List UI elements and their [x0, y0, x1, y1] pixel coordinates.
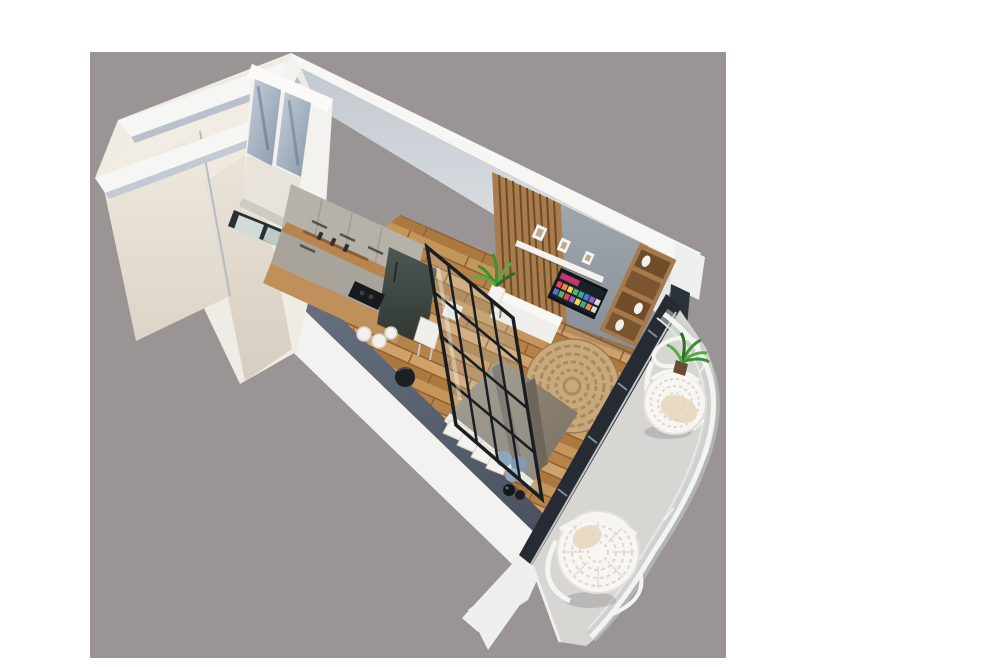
vase-highlight [506, 487, 509, 490]
chair-shadow [564, 592, 616, 608]
apartment-render-stage [0, 0, 1000, 667]
apartment-3d-render [0, 0, 1000, 667]
bar-stool [372, 334, 386, 348]
burner [369, 295, 374, 300]
burner [360, 291, 365, 296]
black-floor-vase [503, 484, 515, 496]
bar-stool [385, 327, 397, 339]
black-floor-vase [515, 490, 525, 500]
bar-stool [357, 327, 371, 341]
